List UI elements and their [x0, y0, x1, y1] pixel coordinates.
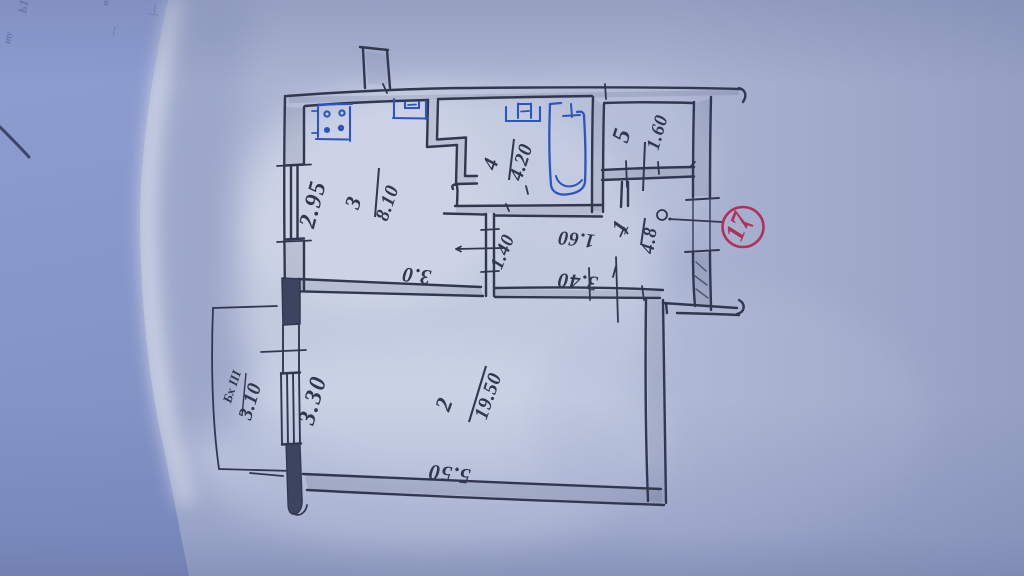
svg-text:1.60: 1.60 — [557, 226, 596, 252]
svg-text:3.40: 3.40 — [556, 268, 600, 296]
svg-text:3.0: 3.0 — [400, 262, 433, 290]
svg-text:4.8: 4.8 — [637, 226, 662, 256]
svg-text:5.50: 5.50 — [426, 459, 471, 489]
